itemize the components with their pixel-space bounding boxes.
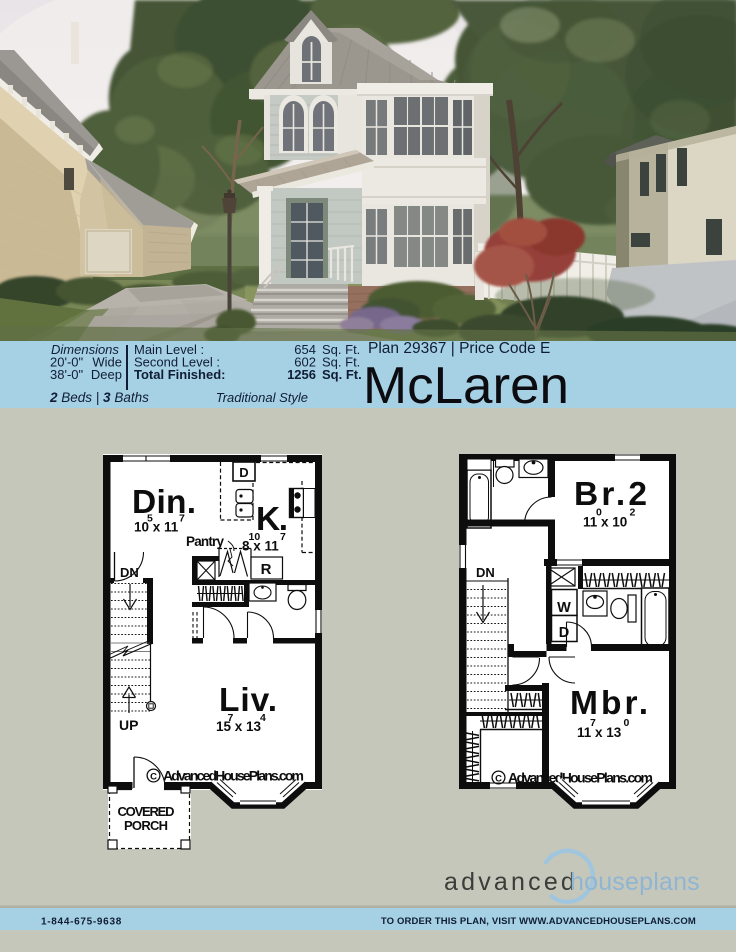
svg-text:TO ORDER THIS PLAN, VISIT WWW.: TO ORDER THIS PLAN, VISIT WWW.ADVANCEDHO… (381, 916, 696, 927)
svg-text:R: R (261, 561, 272, 578)
svg-text:UP: UP (119, 717, 138, 733)
svg-text:AdvancedHousePlans.com: AdvancedHousePlans.com (508, 770, 653, 786)
svg-text:DN: DN (476, 565, 495, 580)
svg-text:Sq. Ft.: Sq. Ft. (322, 367, 362, 382)
svg-text:W: W (557, 600, 571, 616)
svg-text:7: 7 (590, 717, 596, 729)
svg-text:15 x 13: 15 x 13 (216, 719, 262, 734)
svg-text:Traditional Style: Traditional Style (216, 390, 308, 405)
svg-text:AdvancedHousePlans.com: AdvancedHousePlans.com (163, 768, 304, 784)
svg-text:McLaren: McLaren (363, 357, 569, 415)
svg-text:D: D (239, 465, 248, 480)
svg-text:7: 7 (179, 513, 185, 525)
svg-text:C: C (150, 772, 157, 783)
svg-text:2: 2 (630, 507, 636, 519)
svg-text:11 x 13: 11 x 13 (577, 725, 622, 740)
svg-text:Deep: Deep (91, 367, 122, 382)
svg-text:10: 10 (249, 531, 261, 543)
svg-text:Br.2: Br.2 (574, 476, 647, 513)
svg-text:Pantry: Pantry (186, 534, 224, 549)
svg-text:houseplans: houseplans (570, 868, 700, 896)
svg-text:PORCH: PORCH (124, 818, 168, 833)
svg-text:D: D (559, 625, 569, 641)
svg-text:4: 4 (260, 712, 266, 724)
svg-text:Din.: Din. (132, 484, 196, 521)
svg-text:1256: 1256 (287, 367, 316, 382)
svg-text:0: 0 (596, 507, 602, 519)
svg-text:Total Finished:: Total Finished: (134, 367, 225, 382)
svg-text:11 x 10: 11 x 10 (583, 515, 627, 530)
svg-text:38'-0": 38'-0" (50, 367, 84, 382)
svg-text:C: C (495, 774, 502, 785)
svg-text:10 x 11: 10 x 11 (134, 520, 179, 535)
svg-text:5: 5 (147, 513, 153, 525)
svg-text:0: 0 (624, 717, 630, 729)
svg-text:2 Beds | 3 Baths: 2 Beds | 3 Baths (49, 390, 149, 405)
svg-text:7: 7 (280, 531, 286, 543)
svg-text:DN: DN (120, 565, 139, 580)
svg-text:Plan 29367 | Price Code E: Plan 29367 | Price Code E (368, 340, 550, 357)
svg-text:7: 7 (228, 712, 234, 724)
svg-text:COVERED: COVERED (118, 804, 175, 819)
svg-text:1-844-675-9638: 1-844-675-9638 (41, 917, 122, 928)
svg-text:advanced: advanced (444, 868, 578, 896)
